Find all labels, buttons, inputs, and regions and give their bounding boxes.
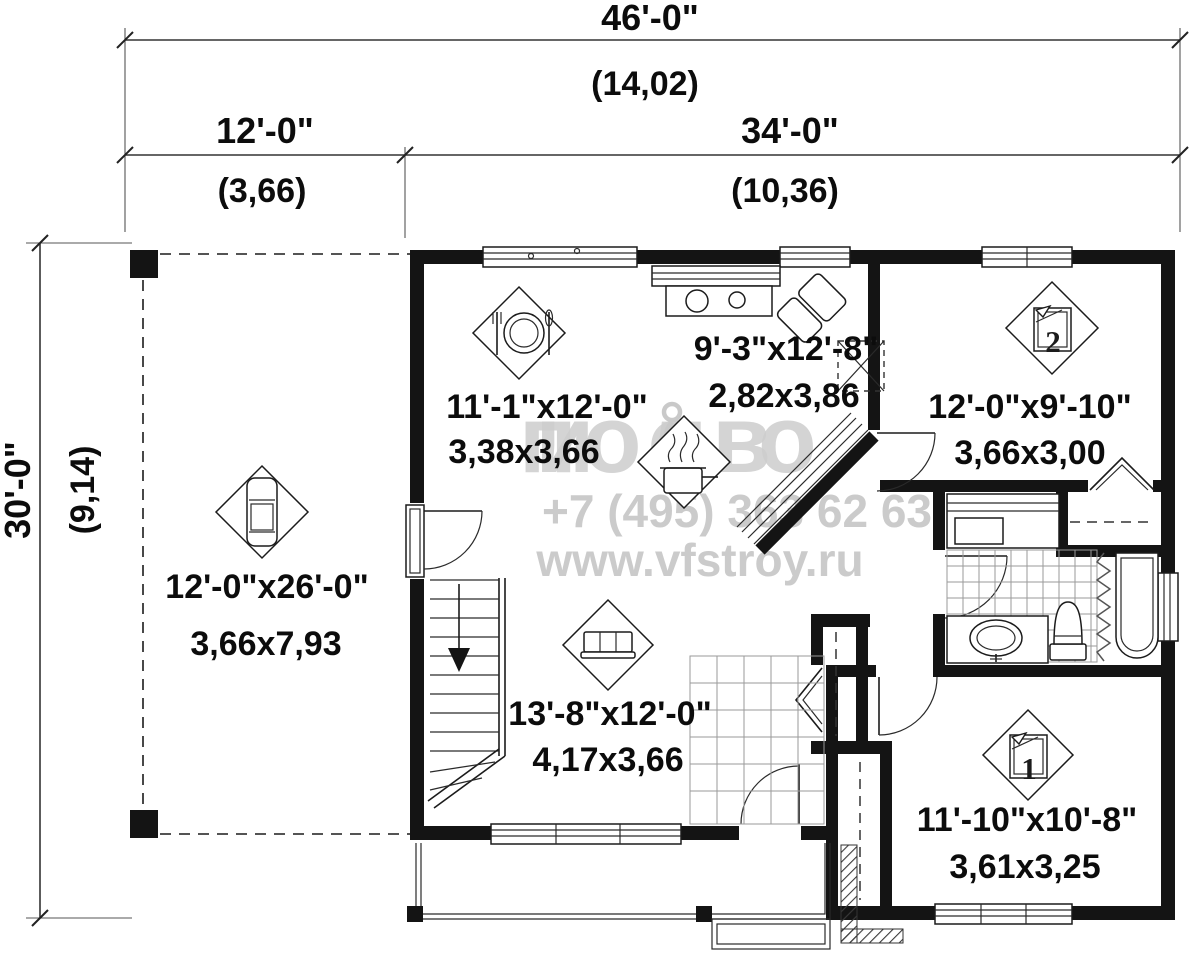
bedroom1-window	[935, 904, 1072, 924]
porch-post	[407, 906, 423, 922]
bedroom2-size-ft: 12'-0"x9'-10"	[928, 388, 1131, 426]
bedroom2-size-m: 3,66x3,00	[954, 434, 1105, 472]
dim-total-width-ft: 46'-0"	[601, 0, 699, 38]
dim-total-width-m: (14,02)	[591, 65, 699, 103]
bathtub-icon	[1116, 553, 1158, 658]
dim-depth-m: (9,14)	[64, 446, 102, 535]
side-stoop	[841, 929, 903, 943]
bedroom1-size-ft: 11'-10"x10'-8"	[917, 801, 1137, 839]
living-window	[491, 824, 681, 844]
bathroom-window	[1158, 573, 1178, 641]
bathroom-sink-icon	[947, 616, 1048, 663]
kitchen-window	[780, 247, 850, 267]
bedroom2-window	[982, 247, 1072, 267]
carport-size-m: 3,66x7,93	[190, 625, 341, 663]
bedroom2-number: 2	[1045, 324, 1061, 359]
floor-plan-sheet: поов ило +7 (495) 363 62 63 www.vfstroy.…	[0, 0, 1200, 953]
porch-post	[696, 906, 712, 922]
dining-size-m: 3,38x3,66	[448, 433, 599, 471]
dim-house-width-ft: 34'-0"	[741, 110, 839, 151]
watermark-website: www.vfstroy.ru	[535, 534, 863, 586]
kitchen-size-ft: 9'-3"x12'-8"	[694, 330, 879, 368]
range-icon	[652, 266, 780, 316]
watermark-phone: +7 (495) 363 62 63	[542, 485, 932, 537]
carport-post	[130, 810, 158, 838]
dim-house-width-m: (10,36)	[731, 172, 839, 210]
bedroom1-number: 1	[1021, 751, 1037, 786]
bedroom1-size-m: 3,61x3,25	[949, 848, 1100, 886]
dim-depth-ft: 30'-0"	[0, 441, 38, 539]
living-size-m: 4,17x3,66	[532, 741, 683, 779]
laundry-counter	[947, 494, 1059, 548]
dim-carport-width-m: (3,66)	[218, 172, 307, 210]
living-size-ft: 13'-8"x12'-0"	[508, 695, 711, 733]
dining-size-ft: 11'-1"x12'-0"	[446, 388, 648, 426]
carport-size-ft: 12'-0"x26'-0"	[165, 568, 368, 606]
dim-carport-width-ft: 12'-0"	[216, 110, 314, 151]
floor-plan-svg: поов ило +7 (495) 363 62 63 www.vfstroy.…	[0, 0, 1200, 953]
kitchen-size-m: 2,82x3,86	[708, 377, 859, 415]
side-stoop	[841, 845, 857, 943]
dining-window	[483, 247, 637, 267]
carport-post	[130, 250, 158, 278]
